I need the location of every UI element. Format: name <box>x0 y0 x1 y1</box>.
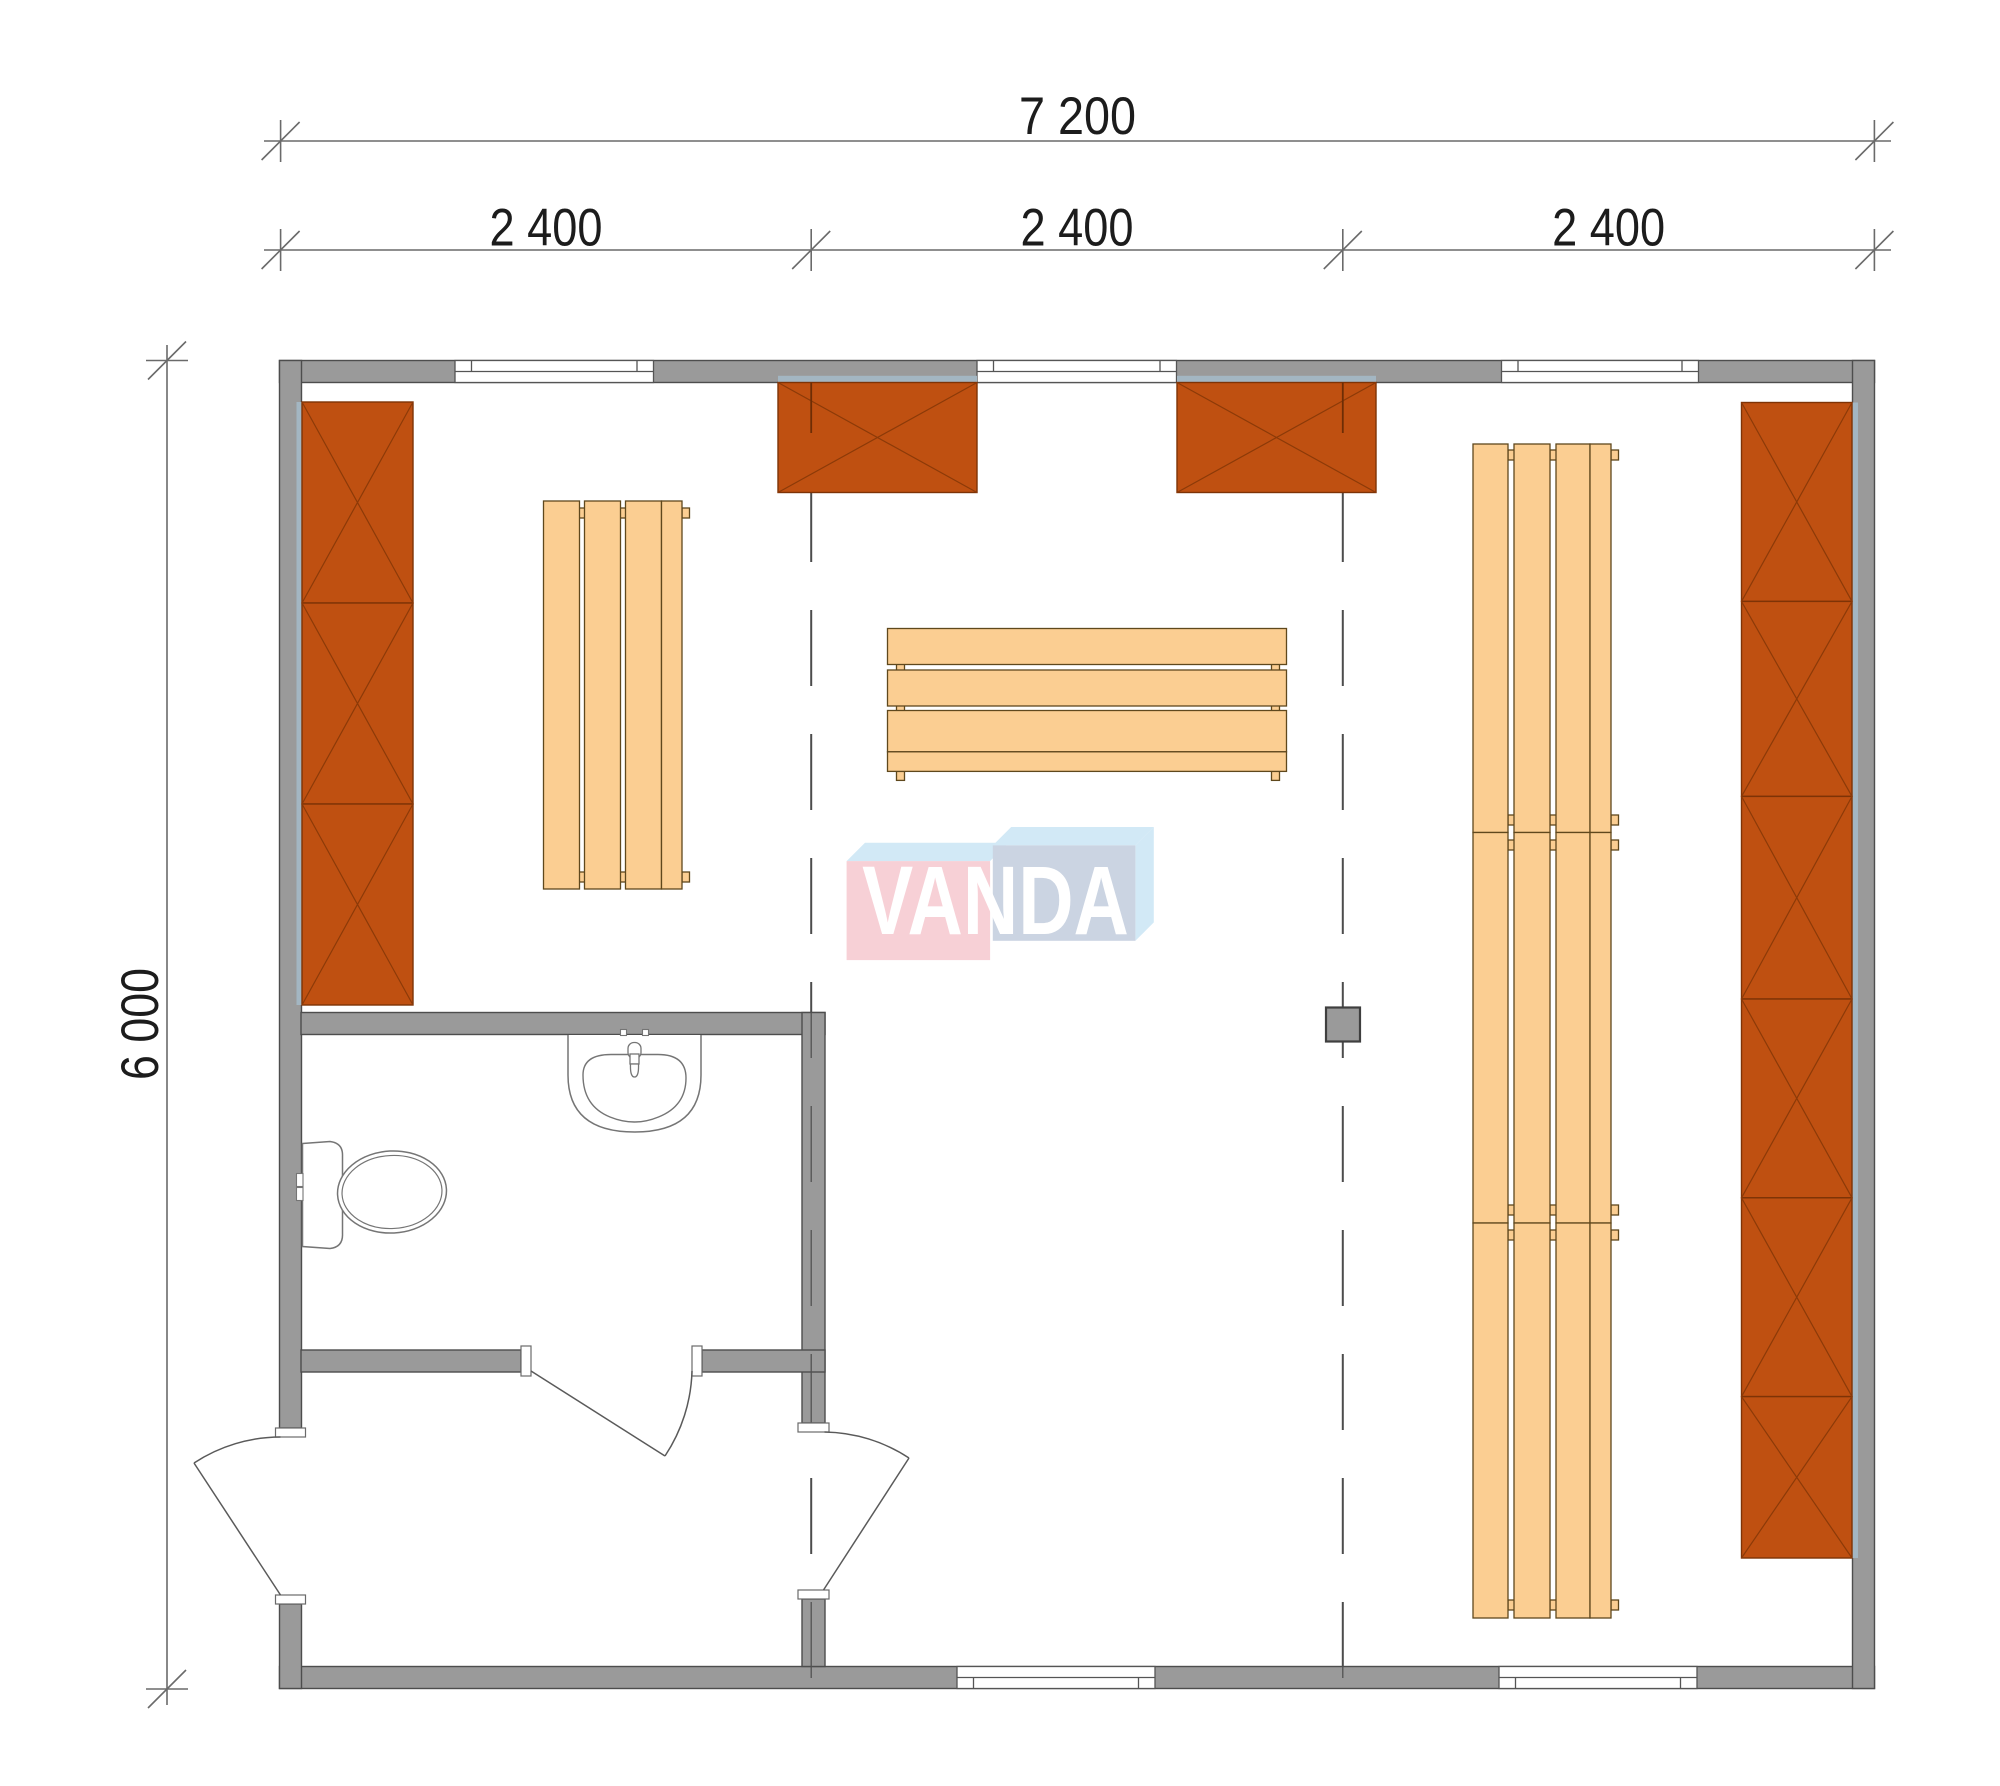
svg-text:2 400: 2 400 <box>490 199 603 258</box>
svg-text:7 200: 7 200 <box>1019 87 1136 146</box>
svg-text:2 400: 2 400 <box>1021 199 1134 258</box>
svg-text:VANDA: VANDA <box>862 846 1129 955</box>
svg-text:2 400: 2 400 <box>1552 199 1665 258</box>
svg-text:6 000: 6 000 <box>111 968 170 1080</box>
